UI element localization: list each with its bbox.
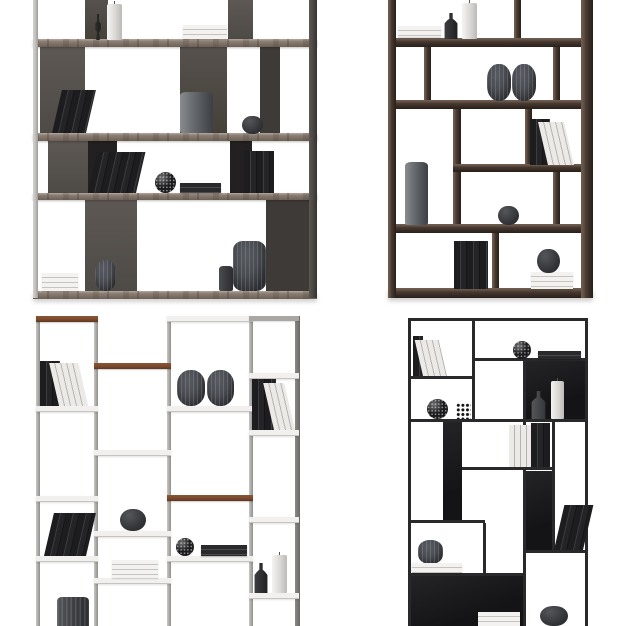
- round-vase: [120, 509, 146, 531]
- shelf: [36, 496, 98, 502]
- bookcase-light-metal-columns: [33, 316, 300, 626]
- books: [530, 119, 574, 165]
- shelf: [167, 556, 253, 562]
- wood-shelf: [33, 39, 317, 47]
- ribbed-vase: [177, 370, 205, 406]
- divider: [553, 172, 560, 226]
- back-panel: [526, 471, 552, 550]
- ribbed-vase: [233, 241, 266, 291]
- ribbed-vase: [512, 64, 536, 101]
- book-stack: [42, 273, 78, 291]
- book-stack: [180, 183, 221, 193]
- back-panel: [260, 47, 280, 134]
- book-stack: [398, 26, 441, 37]
- side-post: [581, 0, 593, 298]
- shelf: [249, 316, 299, 321]
- books: [413, 336, 447, 376]
- small-cylinder-vase: [219, 266, 233, 291]
- books: [40, 361, 88, 406]
- shelf: [408, 520, 485, 523]
- cylinder-vase: [180, 92, 213, 133]
- back-panel: [228, 0, 253, 40]
- wood-shelf: [33, 193, 317, 200]
- shelf: [167, 316, 253, 322]
- books-standing: [454, 241, 488, 289]
- sphere-ornament: [427, 399, 448, 419]
- shelf: [388, 100, 593, 109]
- shelf: [94, 578, 171, 584]
- sphere-ornament: [513, 341, 531, 359]
- round-vase: [537, 249, 560, 273]
- sphere-ornament: [155, 172, 176, 193]
- divider: [492, 233, 499, 290]
- side-post: [309, 0, 317, 298]
- divider: [424, 47, 431, 102]
- shelf: [249, 593, 299, 599]
- sphere-ornament: [176, 538, 194, 556]
- shelf: [388, 38, 593, 47]
- panel-divider: [443, 422, 462, 523]
- divider: [472, 318, 475, 422]
- back-panel: [48, 141, 88, 193]
- shelf: [388, 224, 593, 233]
- books-standing: [531, 423, 550, 467]
- divider: [552, 422, 555, 553]
- books-leaning: [88, 152, 145, 193]
- ribbed-vase: [95, 260, 116, 291]
- book-stack: [531, 272, 573, 289]
- round-vase: [540, 606, 568, 626]
- divider: [483, 523, 486, 576]
- product-collage: [0, 0, 626, 626]
- shelf: [94, 450, 171, 456]
- pillar-candle: [272, 555, 287, 593]
- bottle-vase: [444, 13, 458, 39]
- divider: [553, 47, 560, 102]
- side-post: [388, 0, 396, 298]
- bookcase-staggered-panels: [33, 0, 317, 300]
- ribbed-vase: [418, 540, 443, 564]
- pillar-candle: [551, 381, 564, 419]
- books-leaning: [44, 513, 96, 556]
- bottom-shelf: [388, 288, 593, 298]
- shelf: [167, 406, 253, 412]
- book-stack: [412, 563, 462, 573]
- ribbed-cylinder-vase: [57, 597, 89, 626]
- cylinder-vase: [405, 162, 428, 225]
- shelf: [408, 419, 588, 422]
- divider: [523, 358, 526, 422]
- book-stack: [183, 25, 227, 39]
- books: [252, 379, 295, 430]
- back-panel: [266, 200, 309, 291]
- shelf: [249, 517, 299, 523]
- side-post: [249, 316, 253, 626]
- side-post: [295, 316, 300, 626]
- shelf: [249, 430, 299, 436]
- divider: [514, 0, 521, 40]
- book-stack: [112, 560, 158, 578]
- bottle-vase: [254, 563, 268, 593]
- side-post: [585, 318, 588, 626]
- back-panel: [85, 0, 108, 40]
- books-standing: [244, 151, 274, 193]
- shelf: [408, 573, 523, 576]
- book-stack: [538, 351, 581, 359]
- shelf: [523, 550, 588, 553]
- shelf: [462, 467, 555, 470]
- side-post: [33, 0, 38, 298]
- dot-cube-ornament: [456, 403, 471, 419]
- books-standing: [509, 425, 531, 467]
- round-vase: [242, 116, 263, 134]
- bookcase-walnut-grid: [388, 0, 593, 298]
- pillar-candle: [107, 4, 122, 40]
- wood-shelf: [33, 133, 317, 141]
- shelf: [36, 406, 98, 412]
- round-vase: [498, 206, 519, 225]
- book-stack: [478, 612, 520, 626]
- shelf: [408, 376, 475, 379]
- top-bar: [408, 318, 588, 321]
- wood-shelf: [33, 291, 317, 299]
- bookcase-black-metal-grid: [408, 318, 588, 626]
- wood-accent-shelf: [167, 495, 253, 501]
- shelf: [94, 531, 171, 537]
- book-stack: [201, 545, 247, 556]
- ribbed-vase: [487, 64, 511, 101]
- pillar-candle: [462, 3, 477, 39]
- wood-accent-shelf: [94, 363, 171, 369]
- wood-accent-shelf: [36, 316, 98, 322]
- ribbed-vase: [207, 370, 234, 406]
- side-post: [408, 318, 411, 626]
- shelf: [36, 556, 98, 562]
